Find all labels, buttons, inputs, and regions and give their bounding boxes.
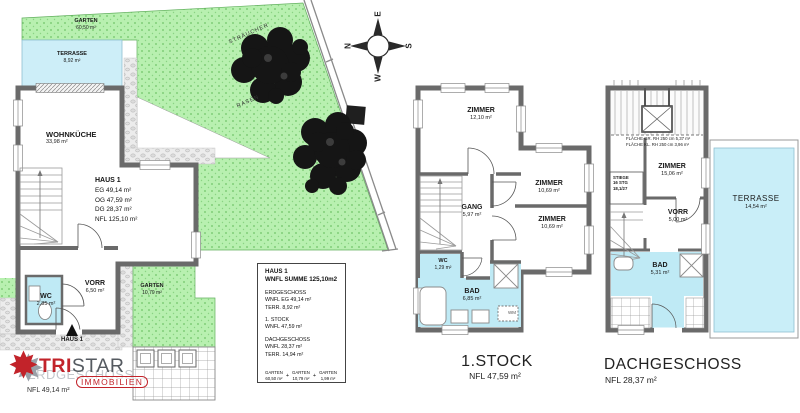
vorr-eg-label: VORR6,50 m² <box>85 280 105 296</box>
eg-floor-nfl: NFL 49,14 m² <box>27 387 70 394</box>
tristar-star-icon: ✸ <box>8 344 39 387</box>
dg-bad-label: BAD5,31 m² <box>651 262 670 278</box>
haus1-summary: HAUS 1 EG 49,14 m² OG 47,59 m² DG 28,37 … <box>95 177 137 225</box>
dg-title: DACHGESCHOSS <box>604 356 742 374</box>
wohnkueche-label: WOHNKÜCHE 33,98 m² <box>46 130 96 146</box>
tristar-immobilien-badge: IMMOBILIEN <box>76 376 148 388</box>
dg-terrasse-label: TERRASSE 14,54 m² <box>732 194 779 211</box>
tristar-wordmark: TRISTAR <box>39 355 124 378</box>
stock1-wc-label: WC1,29 m² <box>435 258 452 271</box>
stock1-zimmer3-label: ZIMMER10,69 m² <box>538 216 566 232</box>
dg-zimmer-label: ZIMMER15,06 m² <box>658 163 686 179</box>
garten-main-label: GARTEN60,50 m² <box>74 18 97 31</box>
compass-w: W <box>374 74 383 82</box>
stock1-title: 1.STOCK <box>461 353 533 371</box>
stock1-nfl: NFL 47,59 m² <box>469 371 521 381</box>
dg-nfl: NFL 28,37 m² <box>605 375 657 385</box>
compass-s: S <box>405 43 414 48</box>
dg-terrace <box>710 140 798 338</box>
dg-flaeche-kl-label: FLÄCHE KL. RH 250 cm 3,96 m² <box>626 142 689 147</box>
garten-patch-label: GARTEN10,79 m² <box>140 283 163 296</box>
compass-e: E <box>374 11 383 16</box>
stock1-floorplan <box>414 84 594 335</box>
stock1-zimmer1-label: ZIMMER12,10 m² <box>467 107 495 123</box>
stock1-zimmer2-label: ZIMMER10,69 m² <box>535 180 563 196</box>
garten-sum-row: GARTEN60,50 m² + GARTEN10,79 m² + GARTEN… <box>265 370 345 381</box>
stock1-bad-label: BAD6,85 m² <box>463 288 482 304</box>
wc-eg-label: WC2,85 m² <box>37 293 56 309</box>
tristar-logo: ✸ TRISTAR IMMOBILIEN <box>6 348 196 408</box>
entrance-label: HAUS 1 <box>61 337 83 343</box>
haus1-infobox: HAUS 1 WNFL SUMME 125,10m2 ERDGESCHOSS W… <box>257 263 346 383</box>
dg-stiege-label: STIEGE16 STG18,1/27 <box>613 175 629 191</box>
floorplan-sheet: GARTEN60,50 m² TERRASSE8,92 m² STRÄUCHER… <box>0 0 800 413</box>
stock1-wm-label: WM <box>508 310 516 315</box>
dg-vorr-label: VORR5,00 m² <box>668 209 688 225</box>
stock1-gang-label: GANG5,97 m² <box>462 204 483 220</box>
dg-flaeche-gr-label: FLÄCHE GR. RH 250 cm 5,37 m² <box>626 136 690 141</box>
compass-n: N <box>344 43 353 49</box>
compass-rose <box>350 18 406 74</box>
terrasse-eg-label: TERRASSE8,92 m² <box>57 51 87 64</box>
